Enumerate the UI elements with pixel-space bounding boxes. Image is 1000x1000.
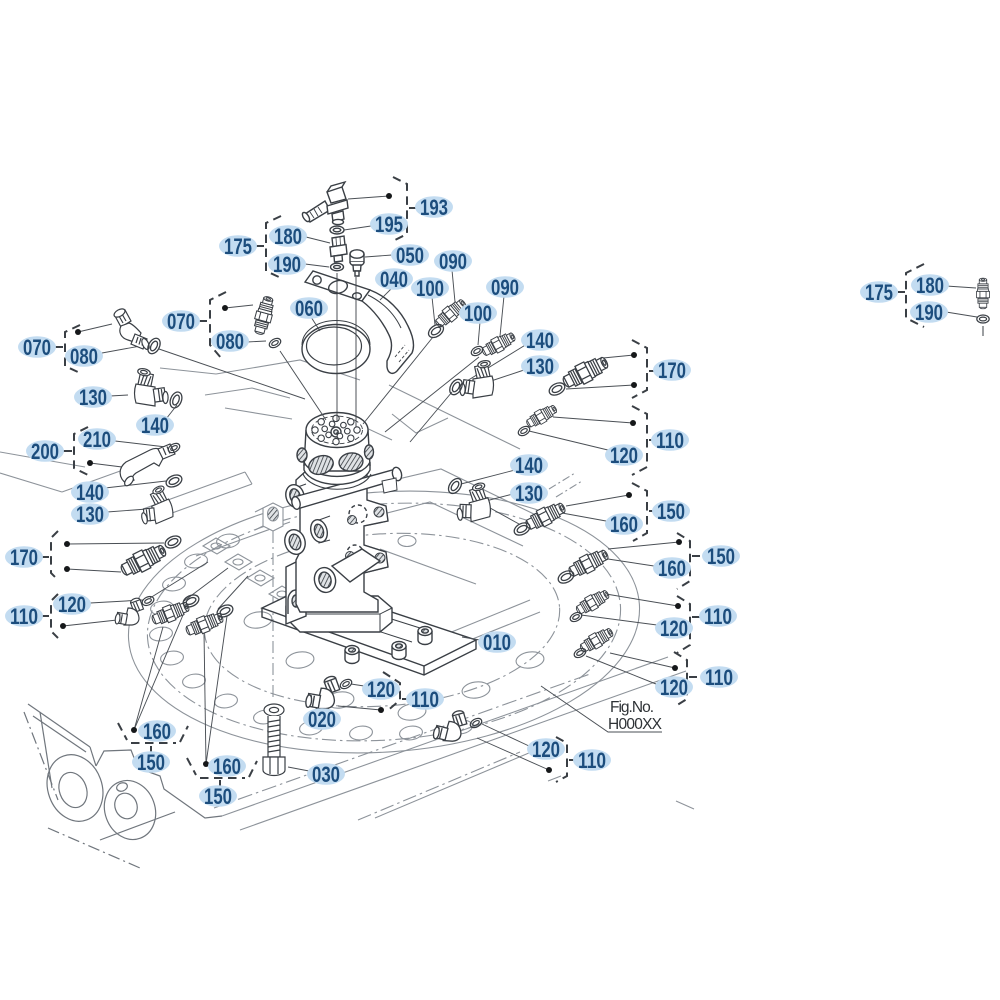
svg-text:195: 195 bbox=[375, 212, 403, 237]
svg-text:080: 080 bbox=[216, 329, 244, 354]
svg-text:120: 120 bbox=[367, 677, 395, 702]
svg-text:020: 020 bbox=[308, 707, 336, 732]
svg-text:070: 070 bbox=[167, 309, 195, 334]
svg-text:210: 210 bbox=[83, 427, 111, 452]
svg-text:160: 160 bbox=[610, 512, 638, 537]
svg-text:140: 140 bbox=[141, 413, 169, 438]
svg-text:175: 175 bbox=[865, 280, 893, 305]
svg-text:110: 110 bbox=[704, 604, 732, 629]
svg-text:110: 110 bbox=[10, 604, 38, 629]
svg-text:030: 030 bbox=[312, 762, 340, 787]
svg-text:Fig.No.: Fig.No. bbox=[610, 699, 654, 716]
svg-text:180: 180 bbox=[916, 273, 944, 298]
svg-text:120: 120 bbox=[660, 675, 688, 700]
svg-text:110: 110 bbox=[656, 428, 684, 453]
svg-text:090: 090 bbox=[439, 249, 467, 274]
svg-text:160: 160 bbox=[213, 754, 241, 779]
svg-text:170: 170 bbox=[658, 358, 686, 383]
svg-text:170: 170 bbox=[10, 545, 38, 570]
svg-text:193: 193 bbox=[420, 195, 448, 220]
svg-text:090: 090 bbox=[491, 275, 519, 300]
svg-text:070: 070 bbox=[23, 335, 51, 360]
svg-text:H000XX: H000XX bbox=[608, 716, 663, 733]
svg-text:200: 200 bbox=[31, 439, 59, 464]
svg-text:110: 110 bbox=[578, 748, 606, 773]
svg-text:120: 120 bbox=[58, 592, 86, 617]
svg-text:190: 190 bbox=[915, 300, 943, 325]
svg-text:010: 010 bbox=[483, 630, 511, 655]
svg-text:110: 110 bbox=[411, 687, 439, 712]
svg-text:140: 140 bbox=[526, 328, 554, 353]
svg-text:150: 150 bbox=[137, 750, 165, 775]
svg-text:100: 100 bbox=[416, 276, 444, 301]
svg-text:180: 180 bbox=[274, 224, 302, 249]
svg-text:140: 140 bbox=[515, 453, 543, 478]
svg-text:190: 190 bbox=[273, 252, 301, 277]
svg-text:130: 130 bbox=[79, 385, 107, 410]
svg-text:040: 040 bbox=[380, 267, 408, 292]
svg-text:050: 050 bbox=[396, 243, 424, 268]
svg-text:150: 150 bbox=[657, 499, 685, 524]
svg-text:150: 150 bbox=[707, 544, 735, 569]
svg-text:130: 130 bbox=[515, 481, 543, 506]
svg-text:130: 130 bbox=[526, 354, 554, 379]
svg-text:120: 120 bbox=[660, 616, 688, 641]
svg-text:130: 130 bbox=[76, 502, 104, 527]
svg-text:160: 160 bbox=[143, 719, 171, 744]
svg-text:150: 150 bbox=[204, 784, 232, 809]
svg-text:175: 175 bbox=[224, 234, 252, 259]
svg-text:160: 160 bbox=[658, 556, 686, 581]
svg-text:110: 110 bbox=[705, 665, 733, 690]
svg-text:060: 060 bbox=[295, 296, 323, 321]
svg-text:080: 080 bbox=[70, 344, 98, 369]
svg-text:120: 120 bbox=[610, 443, 638, 468]
svg-text:100: 100 bbox=[464, 301, 492, 326]
svg-text:120: 120 bbox=[532, 737, 560, 762]
